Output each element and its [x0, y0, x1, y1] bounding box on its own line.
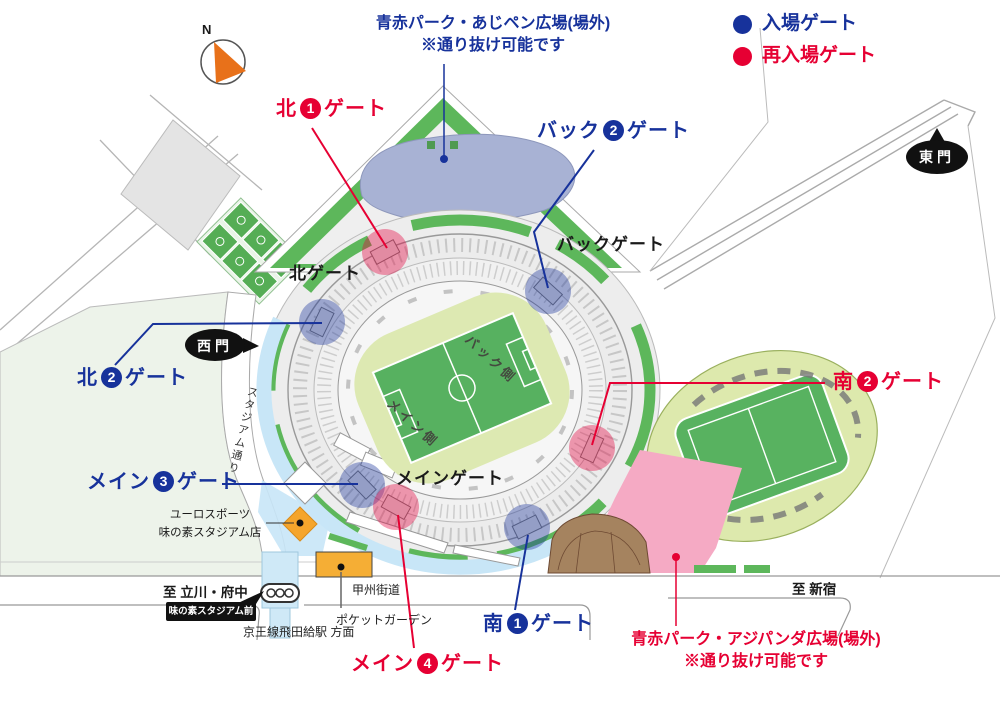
shop-label-line2: 味の素スタジアム店: [156, 525, 264, 543]
shop-label: ユーロスポーツ 味の素スタジアム店: [156, 507, 264, 543]
gate-number-badge: 2: [603, 120, 624, 141]
gate-suffix: ゲート: [441, 653, 504, 675]
gate-suffix: ゲート: [324, 98, 387, 120]
legend-entry-label: 入場ゲート: [762, 13, 857, 36]
gate-number-badge: 4: [417, 653, 438, 674]
park-note-bottom-line2: ※通り抜け可能です: [610, 651, 902, 673]
gate-marker-south2: [569, 425, 615, 471]
gate-suffix: ゲート: [531, 613, 594, 635]
gate-prefix: メイン: [87, 471, 150, 493]
park-note-bottom: 青赤パーク・アジパンダ広場(場外) ※通り抜け可能です: [610, 629, 902, 673]
gate-prefix: 北: [276, 98, 297, 120]
bus-stop-badge-label: 味の素スタジアム前: [168, 606, 254, 617]
gate-label-main4: メイン4ゲート: [351, 652, 504, 676]
gate-prefix: 南: [483, 613, 504, 635]
back-gate-name: バックゲート: [557, 235, 665, 255]
map-graphics: [0, 0, 1000, 705]
park-note-top: 青赤パーク・あじペン広場(場外) ※通り抜け可能です: [357, 13, 629, 57]
to-shinjuku-label: 至 新宿: [792, 582, 836, 598]
park-pointer-dot: [440, 155, 448, 163]
gate-number-badge: 2: [857, 371, 878, 392]
west-gate-badge-label: 西門: [191, 338, 239, 355]
gate-marker-north2: [299, 299, 345, 345]
gate-label-south1: 南1ゲート: [483, 612, 594, 636]
reentry-gate-dot-icon: [733, 47, 752, 66]
pocket-garden-block: [316, 552, 372, 577]
gate-number-badge: 3: [153, 471, 174, 492]
shop-label-line1: ユーロスポーツ: [156, 507, 264, 525]
gate-label-north1: 北1ゲート: [276, 97, 387, 121]
gate-number-badge: 2: [101, 367, 122, 388]
plaza-pointer-dot: [672, 553, 680, 561]
gate-prefix: メイン: [351, 653, 414, 675]
park-note-top-line1: 青赤パーク・あじペン広場(場外): [357, 13, 629, 35]
garden-pointer-dot: [338, 564, 345, 571]
gate-label-south2: 南2ゲート: [833, 370, 944, 394]
gate-suffix: ゲート: [881, 371, 944, 393]
gate-number-badge: 1: [300, 98, 321, 119]
east-gate-badge-label: 東門: [913, 149, 961, 166]
park-note-top-line2: ※通り抜け可能です: [357, 35, 629, 57]
legend-entry: 入場ゲート: [733, 13, 857, 36]
gate-marker-north1: [362, 229, 408, 275]
gate-label-main3: メイン3ゲート: [87, 470, 240, 494]
shop-pointer-dot: [297, 520, 304, 527]
gate-label-back2: バック2ゲート: [537, 119, 690, 143]
legend-reentry-label: 再入場ゲート: [762, 45, 876, 68]
gate-prefix: バック: [537, 120, 600, 142]
stadium-map: N 入場ゲート 再入場ゲート 青赤パーク・あじペン広場(場外) ※通り抜け可能で…: [0, 0, 1000, 705]
gate-suffix: ゲート: [125, 367, 188, 389]
gate-prefix: 北: [77, 367, 98, 389]
to-tachikawa-label: 至 立川・府中: [163, 585, 248, 601]
legend-reentry: 再入場ゲート: [733, 45, 876, 68]
compass-north-label: N: [202, 22, 211, 38]
keio-station-label: 京王線飛田給駅 方面: [243, 625, 354, 639]
entry-gate-dot-icon: [733, 15, 752, 34]
gate-number-badge: 1: [507, 613, 528, 634]
north-gate-name: 北ゲート: [289, 264, 361, 284]
park-note-bottom-line1: 青赤パーク・アジパンダ広場(場外): [610, 629, 902, 651]
main-gate-name: メインゲート: [396, 469, 504, 489]
gate-marker-back2: [525, 268, 571, 314]
gate-prefix: 南: [833, 371, 854, 393]
gate-label-north2: 北2ゲート: [77, 366, 188, 390]
gate-suffix: ゲート: [627, 120, 690, 142]
koshu-kaido-label: 甲州街道: [352, 583, 400, 597]
gate-marker-main4: [373, 484, 419, 530]
